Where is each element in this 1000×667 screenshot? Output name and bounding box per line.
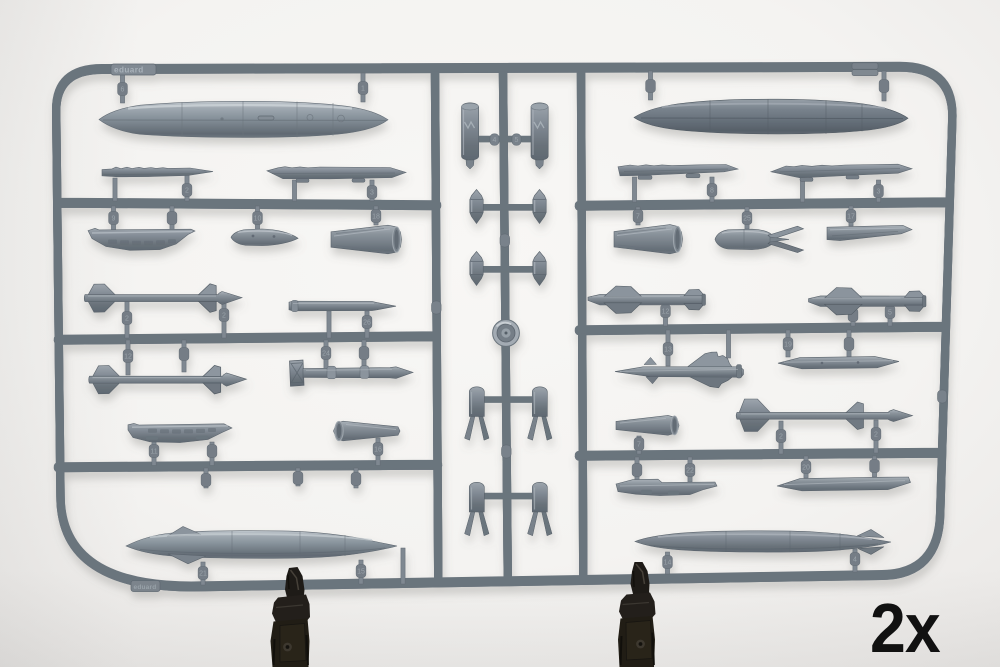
svg-text:26: 26 (363, 320, 371, 327)
svg-text:11: 11 (150, 449, 157, 456)
svg-text:18: 18 (372, 214, 380, 221)
svg-text:17: 17 (847, 214, 855, 221)
svg-text:4: 4 (493, 137, 497, 144)
svg-text:21: 21 (199, 571, 207, 578)
svg-text:2x: 2x (870, 590, 940, 667)
svg-text:13: 13 (664, 347, 672, 354)
svg-text:9: 9 (112, 216, 116, 223)
svg-text:16: 16 (374, 447, 382, 454)
svg-text:10: 10 (254, 216, 262, 223)
svg-text:12: 12 (662, 309, 670, 316)
svg-text:3: 3 (877, 189, 881, 196)
svg-text:2: 2 (125, 316, 129, 323)
svg-text:22: 22 (686, 468, 694, 475)
svg-text:2: 2 (874, 432, 878, 439)
svg-text:8: 8 (710, 188, 714, 195)
svg-text:eduard: eduard (134, 584, 157, 591)
svg-text:1: 1 (361, 86, 365, 93)
svg-text:5: 5 (888, 310, 892, 317)
svg-text:24: 24 (322, 351, 330, 358)
svg-text:20: 20 (802, 465, 810, 472)
svg-text:19: 19 (784, 342, 792, 349)
svg-text:3: 3 (370, 190, 374, 197)
svg-text:4: 4 (853, 557, 857, 564)
svg-text:7: 7 (636, 214, 640, 221)
svg-text:14: 14 (664, 560, 672, 567)
svg-text:eduard: eduard (114, 66, 144, 75)
svg-text:12: 12 (124, 354, 132, 361)
svg-text:7: 7 (637, 442, 641, 449)
svg-text:25: 25 (743, 216, 751, 223)
svg-text:2: 2 (185, 188, 189, 195)
svg-text:2: 2 (779, 434, 783, 441)
svg-text:5: 5 (515, 137, 519, 144)
svg-text:2: 2 (222, 313, 226, 320)
svg-text:15: 15 (357, 569, 365, 576)
svg-text:6: 6 (121, 87, 125, 94)
